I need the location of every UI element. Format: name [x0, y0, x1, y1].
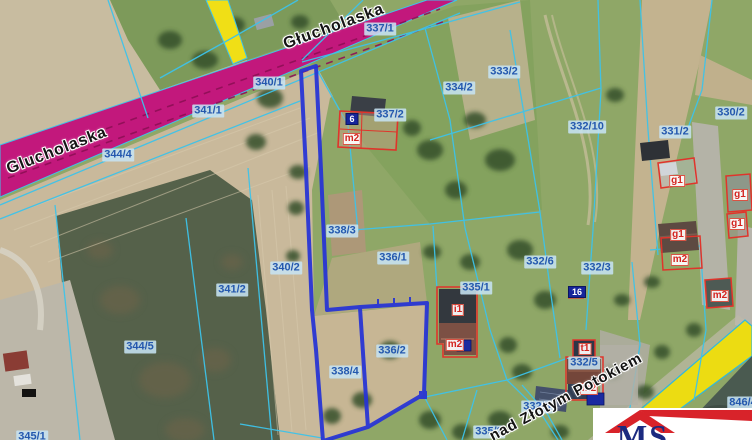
- building-label: g1: [729, 218, 745, 230]
- building-label: t1: [579, 343, 592, 355]
- parcel-label: 331/2: [659, 126, 691, 139]
- parcel-label: 345/1: [16, 431, 48, 440]
- parcel-label: 335/1: [460, 282, 492, 295]
- parcel-label: 338/3: [326, 225, 358, 238]
- parcel-label: 333/2: [488, 66, 520, 79]
- parcel-label: 332/5: [568, 357, 600, 370]
- parcel-label: 332/10: [568, 121, 606, 134]
- parcel-label: 344/5: [124, 341, 156, 354]
- parcel-label: 334/2: [443, 82, 475, 95]
- building-label: m2: [343, 133, 361, 145]
- building-label: g1: [670, 229, 686, 241]
- building-label: g1: [732, 189, 748, 201]
- house-number-label: 16: [568, 286, 586, 298]
- parcel-label: 332/6: [524, 256, 556, 269]
- map-canvas[interactable]: 337/1340/1341/1344/4334/2333/2332/10331/…: [0, 0, 752, 440]
- watermark-logo: MS: [593, 408, 752, 440]
- building-label: g1: [669, 175, 685, 187]
- logo-text: MS: [617, 420, 669, 440]
- building-label: m2: [446, 339, 464, 351]
- parcel-label: 338/4: [329, 366, 361, 379]
- building-label: i1: [452, 304, 464, 316]
- parcel-label: 341/1: [192, 105, 224, 118]
- parcel-label: 336/1: [377, 252, 409, 265]
- building-label: m2: [671, 254, 689, 266]
- parcel-label: 344/4: [102, 149, 134, 162]
- parcel-label: 340/1: [253, 77, 285, 90]
- parcel-label: 330/2: [715, 107, 747, 120]
- parcel-label: 337/2: [374, 109, 406, 122]
- building-label: m2: [711, 290, 729, 302]
- parcel-label: 336/2: [376, 345, 408, 358]
- house-number-label: 6: [345, 113, 358, 125]
- road-name-label: Glucholaska: [4, 124, 110, 179]
- parcel-label: 332/3: [581, 262, 613, 275]
- map-labels: 337/1340/1341/1344/4334/2333/2332/10331/…: [0, 0, 752, 440]
- parcel-label: 340/2: [270, 262, 302, 275]
- parcel-label: 337/1: [364, 23, 396, 36]
- parcel-label: 341/2: [216, 284, 248, 297]
